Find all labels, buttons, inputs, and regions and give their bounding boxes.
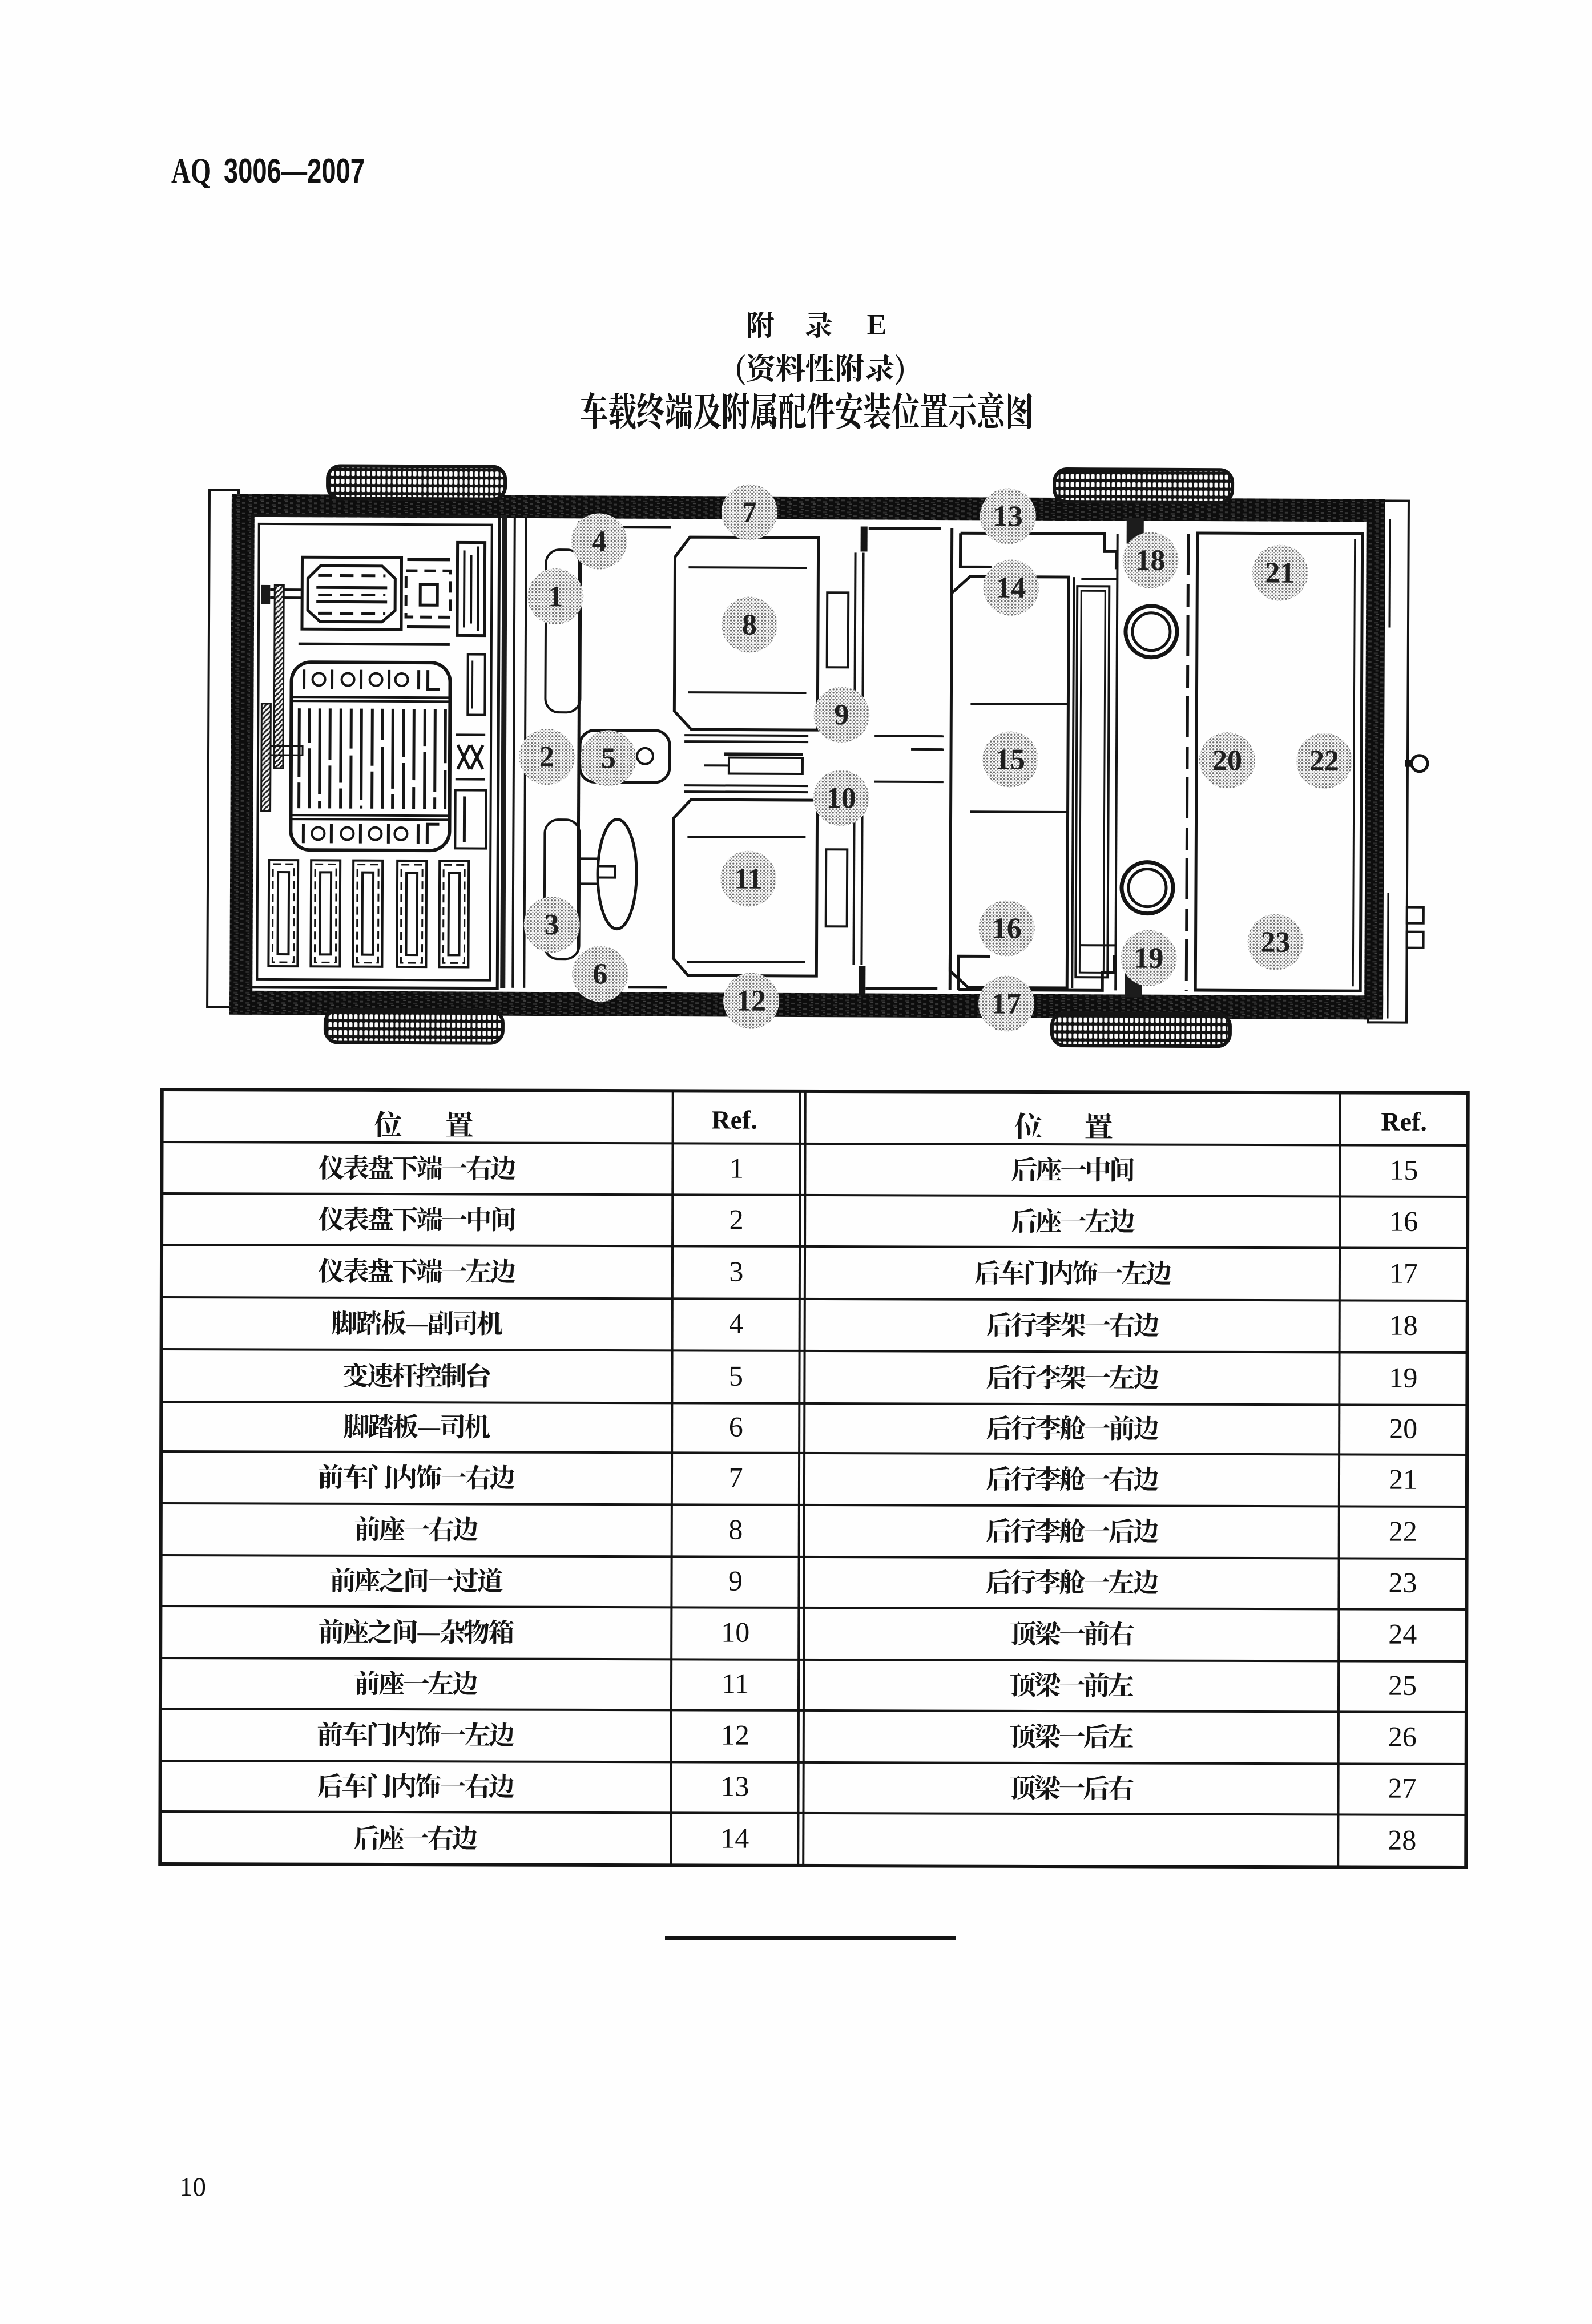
svg-text:7: 7 — [742, 497, 757, 529]
svg-text:3: 3 — [545, 909, 559, 941]
svg-text:20: 20 — [1212, 744, 1242, 777]
svg-text:E: E — [867, 309, 887, 341]
svg-text:13: 13 — [721, 1770, 749, 1802]
svg-text:16: 16 — [992, 912, 1022, 945]
svg-text:8: 8 — [728, 1514, 743, 1546]
svg-text:Ref.: Ref. — [711, 1105, 757, 1135]
svg-text:20: 20 — [1389, 1413, 1417, 1445]
svg-text:16: 16 — [1389, 1205, 1418, 1237]
svg-text:17: 17 — [992, 987, 1021, 1020]
svg-text:18: 18 — [1389, 1309, 1418, 1341]
svg-text:23: 23 — [1388, 1567, 1417, 1599]
svg-text:18: 18 — [1135, 544, 1165, 577]
svg-text:4: 4 — [592, 525, 607, 558]
svg-text:6: 6 — [593, 958, 607, 990]
svg-text:1: 1 — [548, 580, 563, 613]
svg-text:2: 2 — [730, 1204, 744, 1236]
svg-text:6: 6 — [729, 1411, 743, 1443]
svg-text:23: 23 — [1260, 926, 1290, 959]
svg-text:17: 17 — [1389, 1257, 1418, 1289]
svg-text:AQ: AQ — [171, 152, 211, 191]
svg-text:12: 12 — [721, 1719, 749, 1751]
svg-text:25: 25 — [1388, 1669, 1417, 1701]
svg-text:5: 5 — [601, 742, 616, 774]
svg-text:10: 10 — [721, 1616, 749, 1648]
svg-text:27: 27 — [1388, 1772, 1417, 1804]
svg-text:14: 14 — [720, 1822, 749, 1854]
svg-text:19: 19 — [1389, 1362, 1417, 1394]
svg-text:21: 21 — [1389, 1463, 1417, 1495]
svg-text:7: 7 — [728, 1462, 743, 1494]
svg-text:2: 2 — [539, 741, 554, 773]
svg-text:24: 24 — [1388, 1618, 1417, 1650]
svg-text:5: 5 — [729, 1360, 743, 1392]
svg-text:22: 22 — [1309, 745, 1339, 777]
svg-text:14: 14 — [996, 572, 1026, 604]
svg-text:13: 13 — [993, 500, 1023, 532]
svg-text:Ref.: Ref. — [1381, 1107, 1427, 1136]
svg-text:10: 10 — [827, 782, 856, 814]
svg-text:28: 28 — [1388, 1824, 1416, 1856]
svg-text:22: 22 — [1389, 1515, 1417, 1547]
svg-text:12: 12 — [736, 985, 766, 1018]
svg-text:9: 9 — [728, 1565, 743, 1597]
svg-text:3006—2007: 3006—2007 — [224, 152, 365, 190]
svg-text:4: 4 — [729, 1308, 743, 1339]
svg-text:1: 1 — [730, 1152, 744, 1184]
svg-text:10: 10 — [179, 2172, 206, 2202]
svg-text:15: 15 — [995, 744, 1025, 776]
svg-text:9: 9 — [834, 699, 849, 731]
svg-text:3: 3 — [729, 1256, 743, 1288]
svg-text:8: 8 — [742, 609, 757, 641]
svg-text:11: 11 — [722, 1668, 749, 1700]
svg-text:11: 11 — [734, 863, 762, 895]
svg-text:21: 21 — [1265, 557, 1295, 590]
svg-text:26: 26 — [1388, 1721, 1417, 1753]
svg-text:19: 19 — [1134, 942, 1163, 975]
svg-text:15: 15 — [1389, 1154, 1418, 1186]
